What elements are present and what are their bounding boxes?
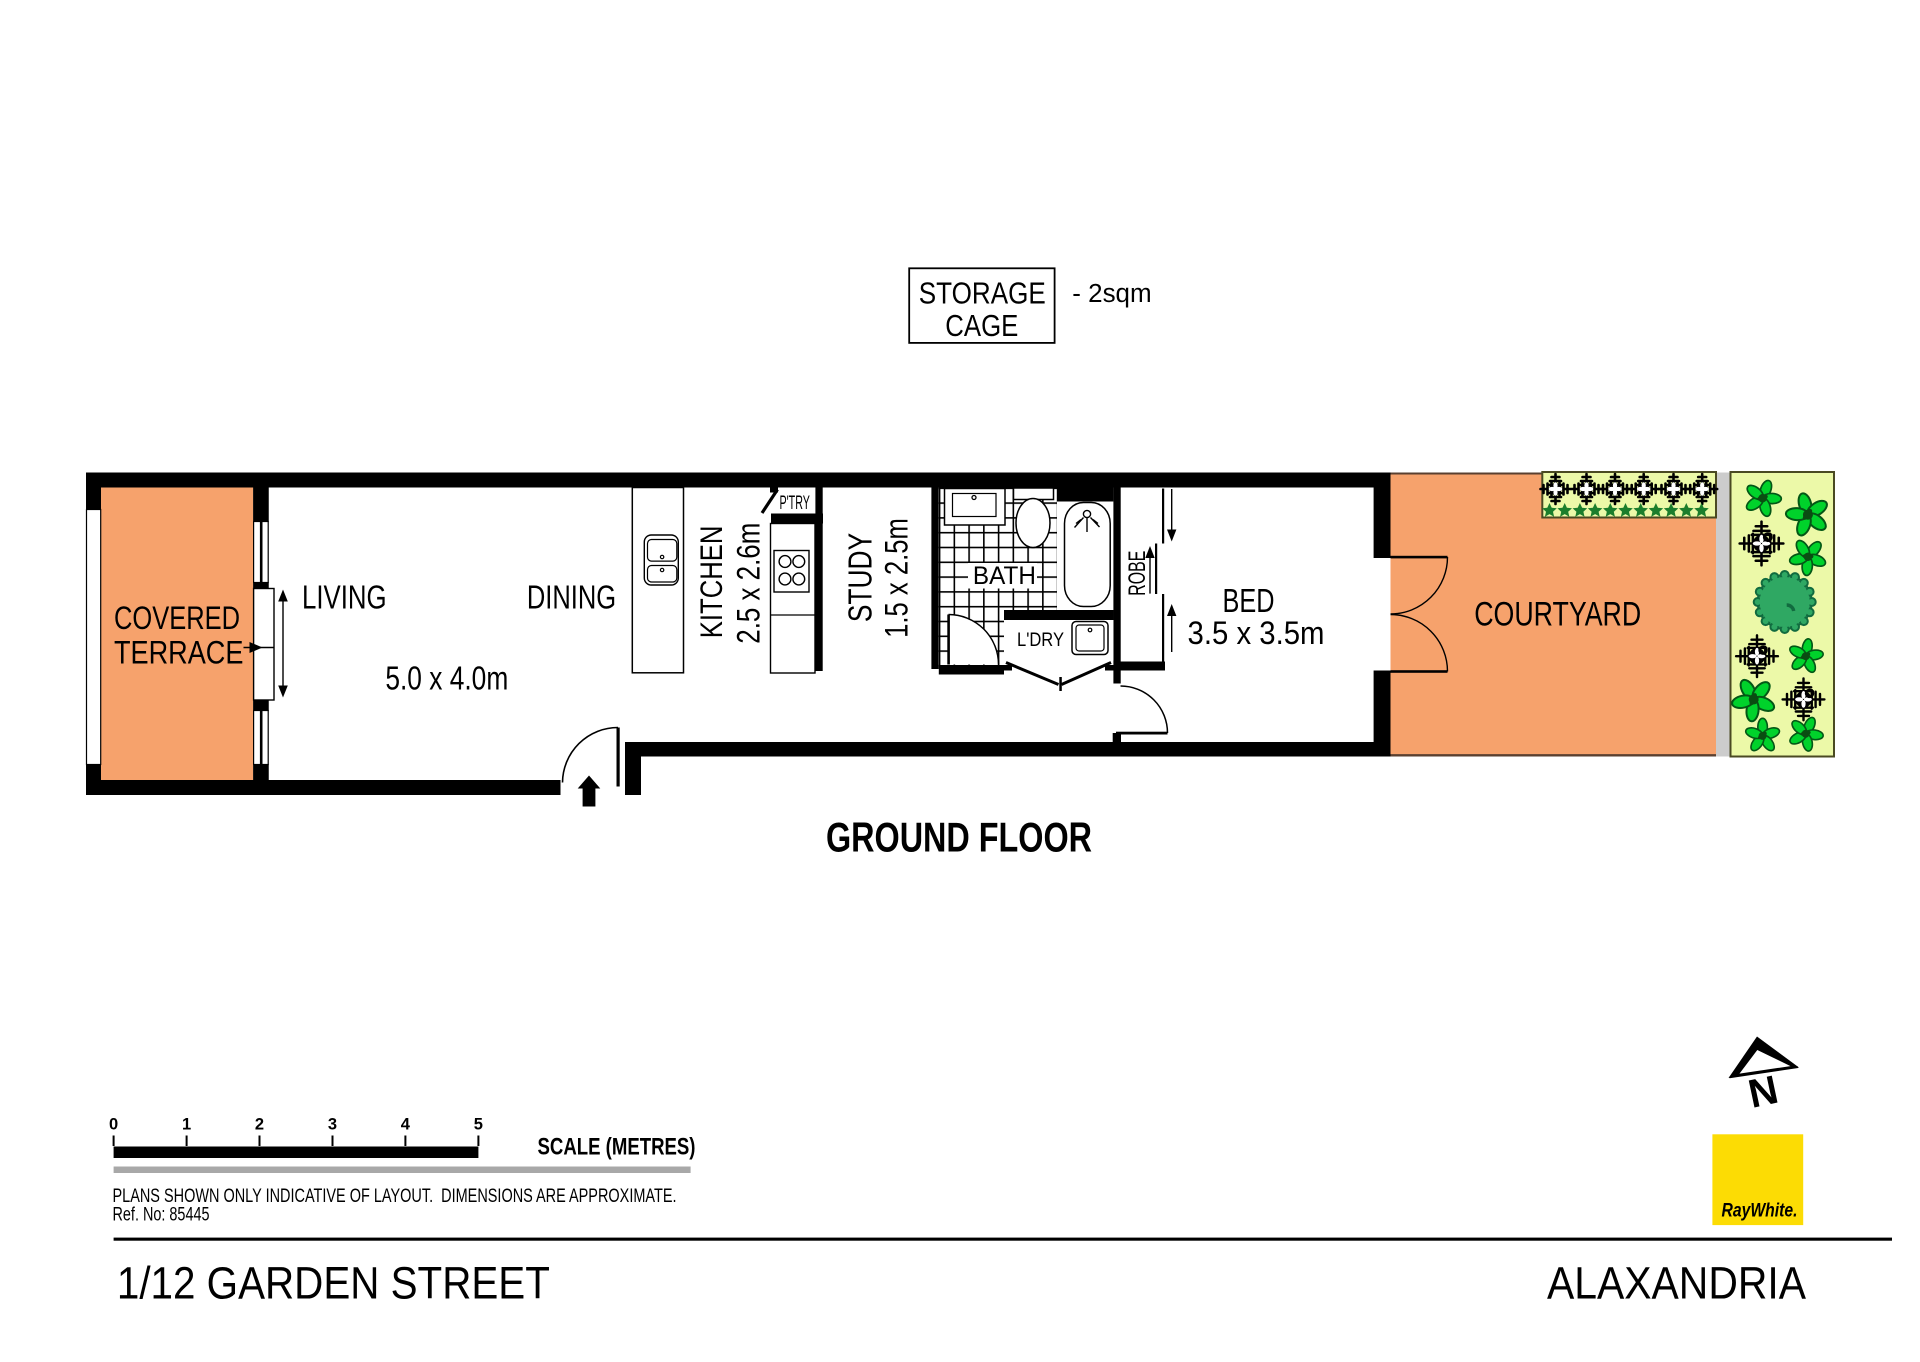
- svg-text:1: 1: [182, 1116, 191, 1134]
- svg-text:BED: BED: [1223, 582, 1275, 619]
- svg-text:- 2sqm: - 2sqm: [1072, 280, 1151, 308]
- svg-text:TERRACE: TERRACE: [114, 635, 244, 671]
- svg-text:Ref. No: 85445: Ref. No: 85445: [113, 1204, 210, 1226]
- svg-text:ROBE: ROBE: [1124, 551, 1151, 596]
- svg-text:3.5 x 3.5m: 3.5 x 3.5m: [1188, 615, 1325, 651]
- svg-text:ALAXANDRIA: ALAXANDRIA: [1547, 1258, 1807, 1309]
- svg-text:LIVING: LIVING: [302, 579, 387, 616]
- svg-text:BATH: BATH: [973, 562, 1036, 590]
- svg-text:DINING: DINING: [527, 579, 616, 616]
- svg-text:4: 4: [401, 1116, 411, 1134]
- svg-text:RayWhite.: RayWhite.: [1722, 1201, 1798, 1222]
- svg-text:1/12 GARDEN STREET: 1/12 GARDEN STREET: [117, 1258, 550, 1309]
- svg-text:3: 3: [328, 1116, 337, 1134]
- svg-text:2: 2: [255, 1116, 264, 1134]
- svg-text:COVERED: COVERED: [114, 600, 240, 636]
- svg-text:L'DRY: L'DRY: [1017, 629, 1064, 651]
- svg-text:STUDY: STUDY: [842, 533, 879, 622]
- svg-text:COURTYARD: COURTYARD: [1474, 596, 1641, 634]
- svg-text:5: 5: [474, 1116, 483, 1134]
- svg-text:P'TRY: P'TRY: [780, 493, 811, 514]
- svg-text:GROUND FLOOR: GROUND FLOOR: [826, 814, 1092, 861]
- svg-text:0: 0: [109, 1116, 118, 1134]
- svg-text:KITCHEN: KITCHEN: [693, 526, 729, 639]
- svg-text:5.0 x 4.0m: 5.0 x 4.0m: [385, 660, 508, 697]
- svg-text:STORAGE: STORAGE: [919, 276, 1046, 311]
- svg-text:2.5 x 2.6m: 2.5 x 2.6m: [731, 523, 767, 644]
- svg-text:SCALE (METRES): SCALE (METRES): [538, 1134, 696, 1161]
- svg-text:1.5 x 2.5m: 1.5 x 2.5m: [878, 518, 914, 638]
- svg-text:CAGE: CAGE: [945, 308, 1018, 343]
